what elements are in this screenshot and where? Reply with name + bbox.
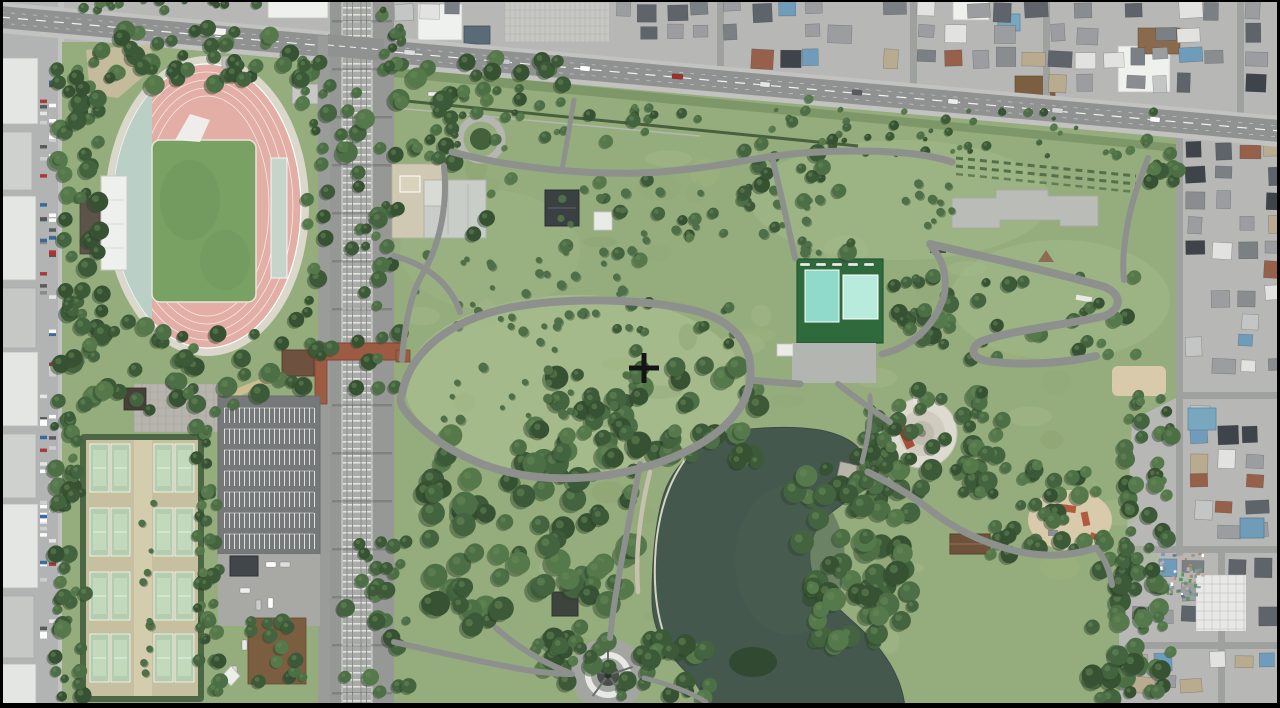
aerial-scene[interactable] xyxy=(0,0,1280,708)
aerial-photo-stage[interactable] xyxy=(0,0,1280,708)
frame-top xyxy=(0,0,1280,2)
frame-left xyxy=(0,0,3,708)
frame-bottom xyxy=(0,703,1280,708)
